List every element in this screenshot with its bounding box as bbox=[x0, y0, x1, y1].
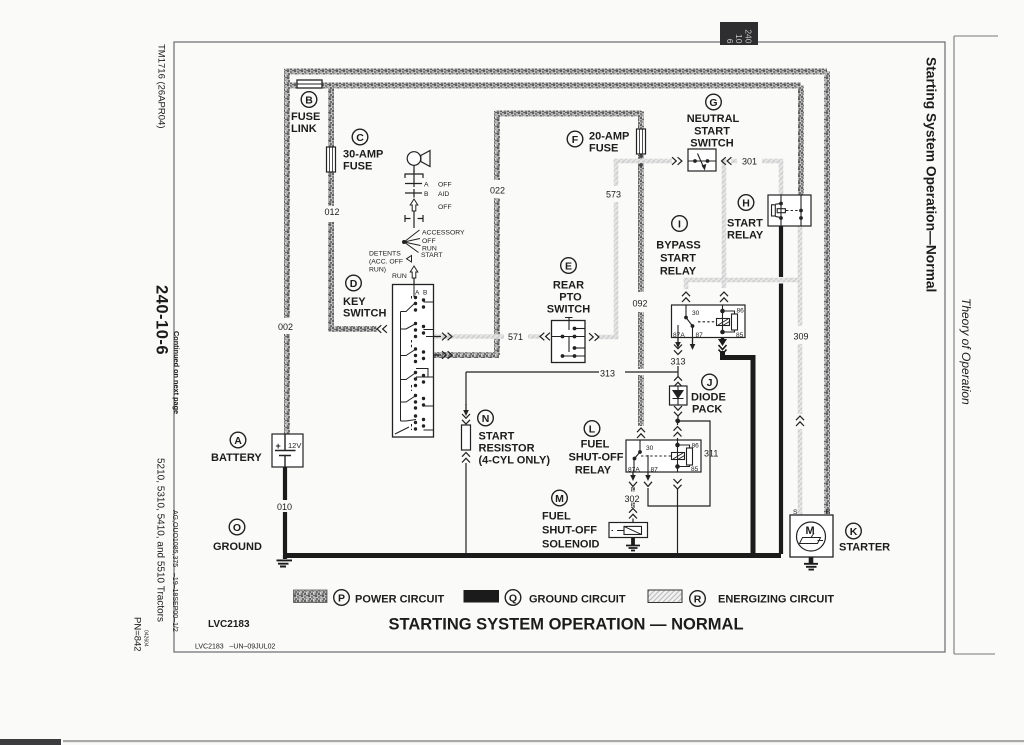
svg-text:B: B bbox=[423, 290, 427, 297]
svg-text:(4-CYL ONLY): (4-CYL ONLY) bbox=[479, 455, 551, 467]
svg-text:E: E bbox=[565, 260, 572, 272]
svg-text:D: D bbox=[350, 278, 358, 290]
svg-text:G: G bbox=[709, 97, 717, 109]
svg-text:FUSE: FUSE bbox=[291, 111, 320, 123]
svg-text:SHUT-OFF: SHUT-OFF bbox=[542, 525, 597, 537]
svg-text:ENERGIZING CIRCUIT: ENERGIZING CIRCUIT bbox=[718, 594, 834, 606]
svg-text:R: R bbox=[694, 593, 702, 605]
svg-text:POWER CIRCUIT: POWER CIRCUIT bbox=[355, 594, 445, 606]
svg-text:85: 85 bbox=[736, 332, 744, 339]
svg-text:313: 313 bbox=[600, 369, 615, 379]
svg-text:A: A bbox=[424, 182, 429, 189]
svg-text:20-AMP: 20-AMP bbox=[589, 131, 629, 143]
svg-text:SHUT-OFF: SHUT-OFF bbox=[569, 452, 624, 464]
svg-text:DIODE: DIODE bbox=[691, 392, 726, 404]
svg-text:KEY: KEY bbox=[343, 296, 366, 308]
svg-text:I: I bbox=[678, 218, 681, 230]
svg-text:309: 309 bbox=[794, 332, 809, 342]
svg-text:SWITCH: SWITCH bbox=[343, 308, 386, 320]
svg-text:85: 85 bbox=[691, 466, 699, 473]
svg-text:Theory of Operation: Theory of Operation bbox=[959, 298, 973, 405]
svg-text:BYPASS: BYPASS bbox=[656, 240, 700, 252]
svg-text:PACK: PACK bbox=[692, 404, 722, 416]
svg-text:Q: Q bbox=[509, 592, 517, 604]
svg-text:30: 30 bbox=[692, 310, 700, 317]
svg-text:RELAY: RELAY bbox=[575, 465, 612, 477]
svg-text:87: 87 bbox=[651, 467, 659, 474]
svg-text:RUN): RUN) bbox=[369, 267, 386, 274]
svg-text:(ACC. OFF: (ACC. OFF bbox=[369, 259, 403, 266]
svg-text:GROUND CIRCUIT: GROUND CIRCUIT bbox=[529, 594, 626, 606]
svg-text:571: 571 bbox=[508, 332, 523, 342]
svg-text:30-AMP: 30-AMP bbox=[343, 149, 383, 161]
svg-text:LVC2183 –UN–09JUL02: LVC2183 –UN–09JUL02 bbox=[195, 644, 276, 651]
svg-text:START: START bbox=[421, 252, 443, 259]
svg-text:+: + bbox=[276, 441, 281, 451]
svg-text:87: 87 bbox=[696, 332, 704, 339]
svg-text:B: B bbox=[826, 509, 831, 516]
svg-text:OFF: OFF bbox=[438, 182, 452, 189]
svg-text:Starting System Operation—Norm: Starting System Operation—Normal bbox=[924, 57, 939, 292]
svg-text:LVC2183: LVC2183 bbox=[208, 619, 250, 630]
svg-text:A: A bbox=[415, 290, 420, 297]
svg-text:FUEL: FUEL bbox=[581, 439, 610, 451]
svg-text:PN=842: PN=842 bbox=[132, 617, 143, 652]
svg-text:042604: 042604 bbox=[143, 630, 149, 647]
svg-text:N: N bbox=[482, 413, 490, 425]
svg-text:GROUND: GROUND bbox=[213, 541, 262, 553]
svg-text:FUSE: FUSE bbox=[343, 161, 372, 173]
svg-text:FUEL: FUEL bbox=[542, 511, 571, 523]
svg-text:B: B bbox=[424, 191, 429, 198]
svg-text:P: P bbox=[338, 592, 345, 604]
svg-text:AID: AID bbox=[438, 191, 449, 198]
svg-text:Continued on next page: Continued on next page bbox=[172, 331, 181, 414]
svg-text:PTO: PTO bbox=[559, 292, 582, 304]
svg-text:002: 002 bbox=[278, 322, 293, 332]
svg-text:RELAY: RELAY bbox=[660, 266, 697, 278]
svg-text:M: M bbox=[555, 493, 564, 505]
svg-text:STARTING SYSTEM OPERATION — NO: STARTING SYSTEM OPERATION — NORMAL bbox=[388, 616, 743, 634]
svg-text:092: 092 bbox=[633, 299, 648, 309]
svg-text:30: 30 bbox=[646, 445, 654, 452]
svg-text:ACCESSORY: ACCESSORY bbox=[422, 230, 465, 237]
svg-text:RESISTOR: RESISTOR bbox=[479, 443, 535, 455]
svg-text:RELAY: RELAY bbox=[727, 230, 764, 242]
svg-text:RUN: RUN bbox=[392, 273, 407, 280]
svg-text:START: START bbox=[727, 218, 763, 230]
svg-text:302: 302 bbox=[625, 494, 640, 504]
svg-text:87A: 87A bbox=[628, 467, 640, 474]
svg-text:SOLENOID: SOLENOID bbox=[542, 539, 600, 551]
svg-text:12V: 12V bbox=[288, 441, 301, 450]
svg-text:FUSE: FUSE bbox=[589, 143, 618, 155]
svg-text:LINK: LINK bbox=[291, 123, 317, 135]
svg-text:5210, 5310, 5410, and 5510 Tra: 5210, 5310, 5410, and 5510 Tractors bbox=[155, 458, 166, 622]
svg-text:SWITCH: SWITCH bbox=[690, 138, 733, 150]
svg-text:L: L bbox=[589, 423, 596, 435]
svg-text:86: 86 bbox=[692, 443, 700, 450]
svg-text:B: B bbox=[305, 94, 313, 106]
svg-text:240: 240 bbox=[744, 29, 754, 43]
svg-text:010: 010 bbox=[277, 502, 292, 512]
svg-text:J: J bbox=[707, 377, 713, 389]
svg-text:OFF: OFF bbox=[438, 204, 452, 211]
svg-text:311: 311 bbox=[704, 449, 718, 459]
svg-text:F: F bbox=[572, 134, 579, 146]
svg-text:87A: 87A bbox=[673, 332, 685, 339]
svg-text:STARTER: STARTER bbox=[839, 542, 890, 554]
svg-text:573: 573 bbox=[606, 190, 621, 200]
svg-text:START: START bbox=[479, 431, 515, 443]
svg-text:TM1716 (26APR04): TM1716 (26APR04) bbox=[156, 44, 167, 128]
svg-text:A: A bbox=[234, 435, 242, 447]
svg-text:SWITCH: SWITCH bbox=[547, 304, 590, 316]
svg-text:6: 6 bbox=[725, 39, 735, 44]
svg-text:START: START bbox=[660, 253, 696, 265]
svg-text:M: M bbox=[806, 525, 815, 537]
svg-text:O: O bbox=[233, 522, 241, 534]
svg-text:86: 86 bbox=[737, 308, 745, 315]
svg-text:S: S bbox=[793, 509, 798, 516]
svg-text:C: C bbox=[356, 132, 364, 144]
svg-text:022: 022 bbox=[490, 186, 505, 196]
svg-text:012: 012 bbox=[325, 207, 340, 217]
svg-text:313: 313 bbox=[671, 357, 686, 367]
svg-text:240-10-6: 240-10-6 bbox=[153, 285, 171, 355]
svg-text:H: H bbox=[742, 197, 750, 209]
svg-text:K: K bbox=[850, 526, 858, 538]
svg-text:NEUTRAL: NEUTRAL bbox=[687, 113, 740, 125]
svg-text:DETENTS: DETENTS bbox=[369, 251, 401, 258]
svg-text:OFF: OFF bbox=[422, 238, 436, 245]
svg-text:AG,OUO1085,375 –19–18SEP00–1: AG,OUO1085,375 –19–18SEP00–1/2 bbox=[171, 510, 178, 632]
svg-text:START: START bbox=[694, 126, 730, 138]
svg-text:BATTERY: BATTERY bbox=[211, 452, 262, 464]
svg-text:REAR: REAR bbox=[553, 280, 584, 292]
svg-text:301: 301 bbox=[742, 157, 757, 167]
